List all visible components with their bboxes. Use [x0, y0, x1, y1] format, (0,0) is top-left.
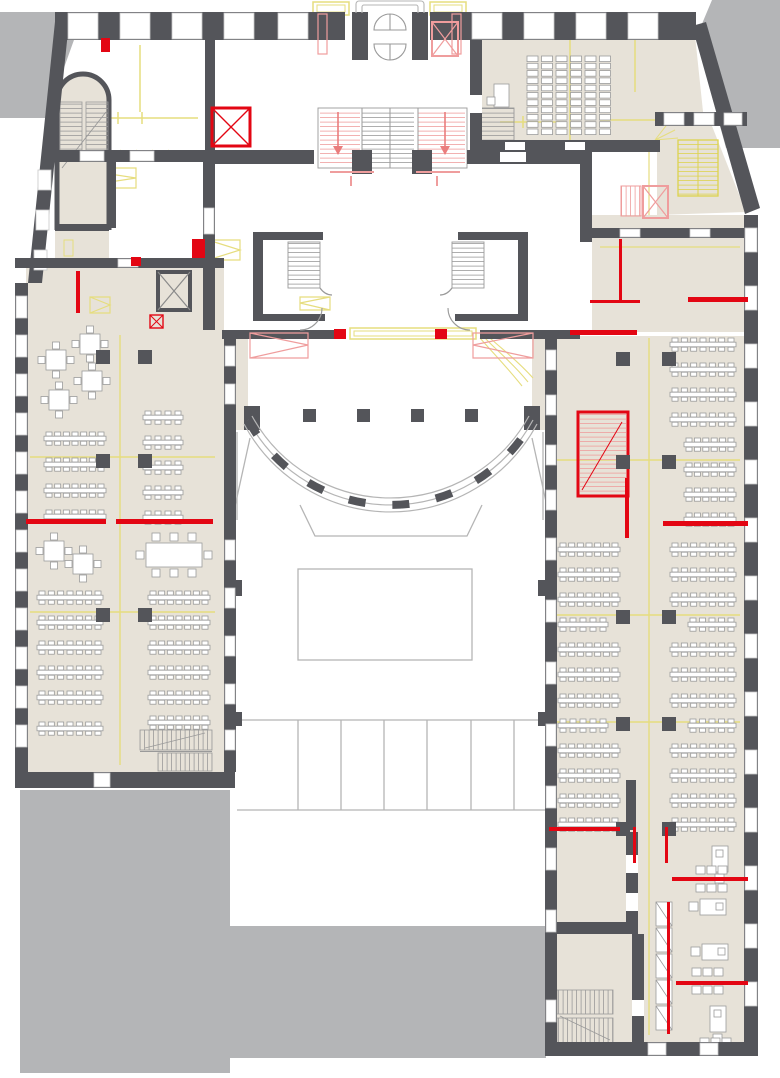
window [745, 692, 757, 716]
chair [686, 463, 692, 467]
lecture-seat [600, 63, 611, 69]
chair [603, 803, 609, 807]
long-table [558, 597, 620, 602]
chair [167, 591, 173, 595]
equipment [714, 1010, 721, 1017]
corridor-north-wall [580, 228, 744, 238]
chair [700, 794, 706, 798]
colonnade-arc [244, 416, 537, 512]
long-table [558, 698, 620, 703]
courtyard-column [303, 409, 316, 422]
chair [681, 347, 687, 351]
chair [681, 422, 687, 426]
chair [719, 818, 725, 822]
chair [719, 778, 725, 782]
chair [691, 372, 697, 376]
lecture-seat [600, 71, 611, 77]
chair [612, 744, 618, 748]
chair [720, 463, 726, 467]
lecture-seat [542, 78, 553, 84]
chair [703, 447, 709, 451]
chair [709, 363, 715, 367]
chair [67, 600, 73, 604]
chair [700, 593, 706, 597]
chair [81, 432, 87, 436]
structural-column [616, 352, 630, 366]
chair [72, 467, 78, 471]
chair [612, 602, 618, 606]
chair [691, 652, 697, 656]
lobby-north-wall-west [213, 150, 314, 164]
chair [720, 472, 726, 476]
chair [709, 643, 715, 647]
vestibule-east-door-gap [470, 95, 482, 113]
table [73, 554, 93, 574]
chair [590, 618, 596, 622]
chair [728, 593, 734, 597]
lecture-seat [556, 63, 567, 69]
chair [80, 575, 87, 582]
chair [703, 986, 712, 994]
chair [67, 691, 73, 695]
chair [145, 420, 151, 424]
long-table [44, 514, 106, 519]
chair [603, 769, 609, 773]
chair [700, 338, 706, 342]
chair [72, 484, 78, 488]
window [80, 151, 104, 161]
chair [672, 577, 678, 581]
lecture-seat [585, 129, 596, 135]
chair [577, 769, 583, 773]
lecture-seat [600, 56, 611, 62]
chair [150, 691, 156, 695]
window [225, 346, 235, 366]
chair [612, 769, 618, 773]
chair [155, 511, 161, 515]
chair [603, 744, 609, 748]
lecture-seat [542, 56, 553, 62]
chair [89, 392, 96, 399]
chair [560, 543, 566, 547]
window [745, 982, 757, 1006]
chair [58, 731, 64, 735]
chair [700, 719, 706, 723]
chair [202, 675, 208, 679]
window [745, 460, 757, 484]
chair [185, 650, 191, 654]
lecture-seat [571, 114, 582, 120]
chair [155, 461, 161, 465]
chair [81, 484, 87, 488]
window [745, 402, 757, 426]
chair [70, 397, 77, 404]
red-line-below-stair [625, 478, 629, 538]
chair [586, 694, 592, 698]
chair [711, 513, 717, 517]
chair [690, 627, 696, 631]
lecture-seat [585, 63, 596, 69]
lecture-seat [527, 56, 538, 62]
chair [719, 552, 725, 556]
chair [89, 432, 95, 436]
chair [167, 691, 173, 695]
chair [145, 495, 151, 499]
chair [586, 803, 592, 807]
window [628, 13, 658, 39]
chair [560, 818, 566, 822]
chair [577, 602, 583, 606]
chair [167, 600, 173, 604]
chair [672, 347, 678, 351]
chair [595, 803, 601, 807]
chair [39, 675, 45, 679]
chair [48, 616, 54, 620]
chair [700, 694, 706, 698]
red-wall-right-upper-b [688, 297, 748, 302]
chair [38, 357, 45, 364]
lecture-seat [527, 122, 538, 128]
chair [159, 600, 165, 604]
chair [577, 694, 583, 698]
chair [577, 543, 583, 547]
lecture-seat [571, 129, 582, 135]
chair [728, 643, 734, 647]
chair [152, 569, 160, 577]
lecture-seat [585, 78, 596, 84]
chair [700, 397, 706, 401]
chair [569, 593, 575, 597]
window [225, 684, 235, 704]
chair [691, 363, 697, 367]
chair [95, 666, 101, 670]
chair [86, 731, 92, 735]
chair [691, 338, 697, 342]
chair [95, 691, 101, 695]
chair [72, 432, 78, 436]
lecture-seat [585, 85, 596, 91]
chair [98, 432, 104, 436]
long-table [37, 595, 103, 600]
chair [691, 794, 697, 798]
window [745, 924, 757, 948]
chair [681, 803, 687, 807]
window [16, 491, 27, 513]
chair [612, 778, 618, 782]
chair [185, 600, 191, 604]
chair [48, 675, 54, 679]
chair [185, 691, 191, 695]
chair [48, 722, 54, 726]
chair [55, 441, 61, 445]
long-table [670, 798, 736, 803]
chair [185, 675, 191, 679]
chair [703, 513, 709, 517]
chair [74, 378, 81, 385]
chair [155, 411, 161, 415]
chair [700, 372, 706, 376]
chair [595, 552, 601, 556]
window [130, 151, 154, 161]
window [68, 13, 98, 39]
chair [728, 753, 734, 757]
chair [560, 668, 566, 672]
chair [681, 593, 687, 597]
chair [719, 769, 725, 773]
chair [681, 643, 687, 647]
chair [193, 616, 199, 620]
window [620, 229, 640, 237]
lecture-seat [527, 71, 538, 77]
chair [560, 744, 566, 748]
window [745, 576, 757, 600]
chair [150, 666, 156, 670]
long-table [37, 726, 103, 731]
chair [202, 625, 208, 629]
chair [691, 413, 697, 417]
right-wing-west-wall-lower [545, 520, 557, 1042]
chair [569, 694, 575, 698]
chair [53, 342, 60, 349]
chair [569, 552, 575, 556]
chair [145, 411, 151, 415]
chair [560, 719, 566, 723]
chair [175, 486, 181, 490]
chair [577, 668, 583, 672]
chair [681, 753, 687, 757]
chair [89, 458, 95, 462]
structural-column [138, 454, 152, 468]
window [120, 13, 150, 39]
south-wall-east [480, 330, 580, 339]
chair [672, 668, 678, 672]
chair [709, 388, 715, 392]
red-wall-seg-south-west [334, 329, 346, 339]
lecture-seat [585, 71, 596, 77]
chair [681, 397, 687, 401]
chair [709, 719, 715, 723]
chair [681, 818, 687, 822]
lecture-seat [600, 100, 611, 106]
chair [603, 677, 609, 681]
chair [728, 472, 734, 476]
chair [700, 577, 706, 581]
chair [48, 625, 54, 629]
lecture-seat [600, 129, 611, 135]
chair [58, 666, 64, 670]
chair [560, 728, 566, 732]
chair [612, 677, 618, 681]
chair [603, 543, 609, 547]
window [94, 773, 110, 787]
chair [577, 803, 583, 807]
chair [569, 568, 575, 572]
chair [595, 778, 601, 782]
chair [39, 731, 45, 735]
chair [586, 643, 592, 647]
right-wing-west-wall-upper [545, 330, 557, 520]
long-table [44, 488, 106, 493]
long-table [558, 822, 620, 827]
chair [690, 728, 696, 732]
chair [728, 618, 734, 622]
chair [672, 652, 678, 656]
lecture-seat [571, 107, 582, 113]
chair [691, 602, 697, 606]
chair [691, 769, 697, 773]
right-wing-red-stair [578, 412, 628, 496]
chair [46, 510, 52, 514]
long-table [558, 647, 620, 652]
chair [719, 347, 725, 351]
window [225, 540, 235, 560]
lecture-seat [585, 100, 596, 106]
west-slant-window-2 [36, 210, 49, 230]
chair [159, 675, 165, 679]
chair [709, 778, 715, 782]
chair [159, 616, 165, 620]
office-door-gap-1 [626, 855, 638, 873]
lecture-seat [571, 85, 582, 91]
lecture-seat [571, 100, 582, 106]
chair [193, 650, 199, 654]
chair [700, 818, 706, 822]
chair [150, 600, 156, 604]
red-wall-seg-south-east [435, 329, 447, 339]
chair [176, 725, 182, 729]
chair [193, 641, 199, 645]
chair [577, 652, 583, 656]
canopy-outline-outer [356, 1, 424, 13]
chair [569, 602, 575, 606]
chair [98, 441, 104, 445]
chair [570, 719, 576, 723]
chair [577, 753, 583, 757]
chair [590, 728, 596, 732]
chair [570, 618, 576, 622]
chair [67, 625, 73, 629]
chair [560, 694, 566, 698]
lecture-seat [542, 71, 553, 77]
chair [672, 397, 678, 401]
stair-exit-tick-east [416, 172, 460, 186]
chair [175, 470, 181, 474]
chair [709, 827, 715, 831]
chair [46, 467, 52, 471]
structural-column [138, 608, 152, 622]
window [546, 1000, 556, 1022]
chair [155, 445, 161, 449]
chair [686, 447, 692, 451]
chair [595, 577, 601, 581]
chair [67, 616, 73, 620]
chair [145, 486, 151, 490]
chair [586, 577, 592, 581]
stair-rail-curve [440, 288, 452, 295]
chair [700, 728, 706, 732]
stair-room-door-gap [632, 1000, 644, 1016]
vestibule-pier-east [412, 12, 428, 60]
chair [586, 778, 592, 782]
chair [709, 397, 715, 401]
lobby-stairwell-west [288, 242, 332, 295]
chair [672, 818, 678, 822]
chair [672, 552, 678, 556]
structural-column [662, 610, 676, 624]
chair [603, 818, 609, 822]
chair [165, 461, 171, 465]
chair [612, 643, 618, 647]
chair [67, 700, 73, 704]
chair [719, 413, 725, 417]
chair [595, 818, 601, 822]
chair [185, 641, 191, 645]
chair [39, 641, 45, 645]
chair [709, 618, 715, 622]
chair [577, 593, 583, 597]
long-table [148, 670, 210, 675]
chair [586, 753, 592, 757]
chair [711, 438, 717, 442]
chair [700, 552, 706, 556]
long-table [558, 798, 620, 803]
window [524, 13, 554, 39]
chair [155, 420, 161, 424]
chair [150, 675, 156, 679]
stairwell-west-low-wall [253, 314, 325, 321]
chair [577, 677, 583, 681]
chair [86, 600, 92, 604]
chair [193, 716, 199, 720]
chair [612, 593, 618, 597]
chair [709, 602, 715, 606]
chair [709, 818, 715, 822]
chair [714, 986, 723, 994]
chair [67, 641, 73, 645]
chair [719, 627, 725, 631]
lecture-seat [571, 93, 582, 99]
long-table [670, 597, 736, 602]
chair [48, 650, 54, 654]
chair [39, 650, 45, 654]
chair [603, 753, 609, 757]
vestibule-pier-west [352, 12, 368, 60]
chair [728, 413, 734, 417]
chair [681, 827, 687, 831]
window [694, 113, 714, 125]
chair [719, 363, 725, 367]
long-table [670, 822, 736, 827]
chair [560, 803, 566, 807]
window [16, 296, 27, 318]
chair [691, 694, 697, 698]
window [546, 848, 556, 870]
chair [175, 436, 181, 440]
chair [193, 600, 199, 604]
chair [202, 691, 208, 695]
chair [95, 650, 101, 654]
chair [709, 703, 715, 707]
chair [728, 703, 734, 707]
chair-group [692, 968, 723, 976]
chair [165, 495, 171, 499]
chair [719, 728, 725, 732]
chair [681, 769, 687, 773]
chair [63, 458, 69, 462]
long-table [670, 342, 736, 347]
chair [719, 744, 725, 748]
table [82, 371, 102, 391]
